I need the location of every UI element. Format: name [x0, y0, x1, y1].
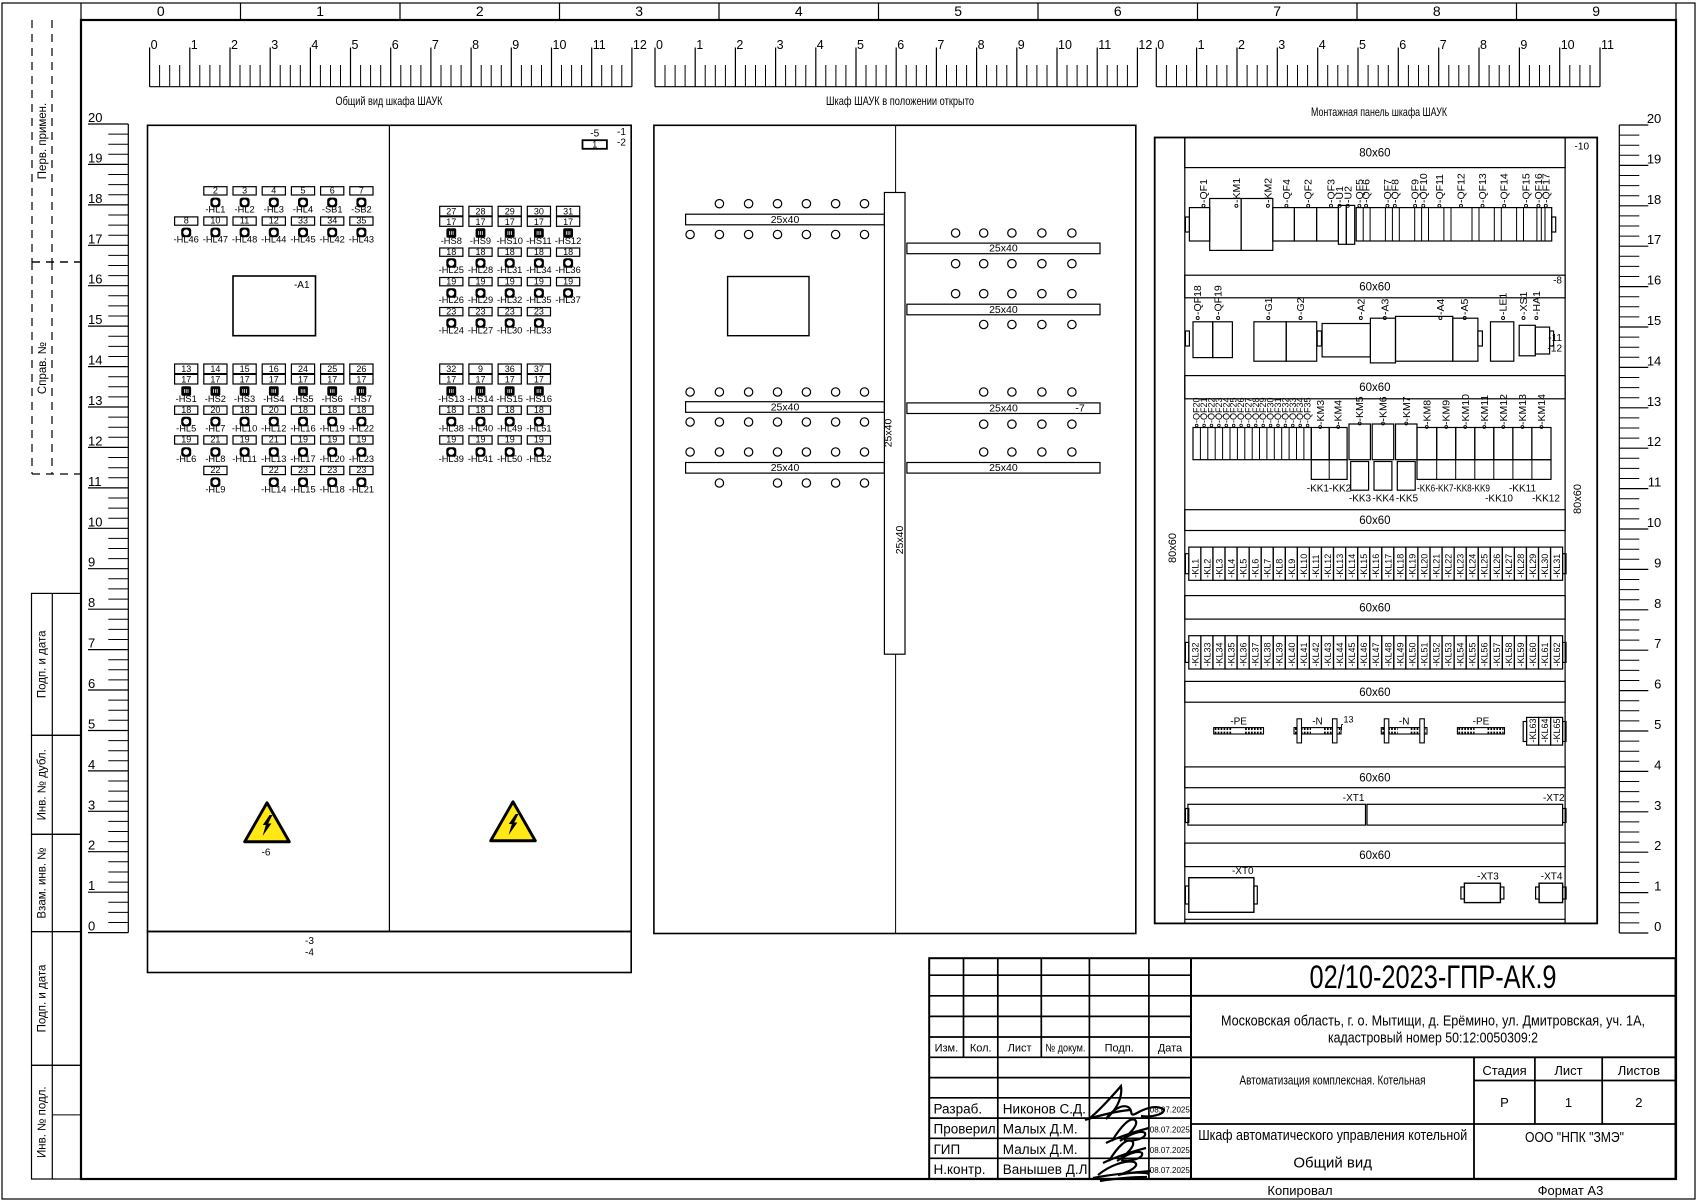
svg-text:-KL12: -KL12 — [1323, 554, 1333, 578]
svg-text:-HS13: -HS13 — [438, 394, 464, 404]
svg-text:-HL9: -HL9 — [205, 484, 225, 494]
svg-text:22: 22 — [210, 465, 220, 475]
svg-text:26: 26 — [356, 364, 366, 374]
svg-text:-QF18: -QF18 — [1192, 285, 1204, 315]
svg-text:11: 11 — [88, 474, 102, 489]
svg-text:17: 17 — [505, 217, 515, 227]
svg-text:17: 17 — [181, 375, 191, 385]
svg-text:2: 2 — [231, 38, 238, 52]
svg-text:-HS9: -HS9 — [470, 236, 491, 246]
svg-text:17: 17 — [298, 375, 308, 385]
svg-text:8: 8 — [978, 38, 985, 52]
svg-text:Взам. инв. №: Взам. инв. № — [37, 847, 49, 918]
svg-text:-KL2: -KL2 — [1202, 559, 1212, 578]
svg-text:11: 11 — [593, 38, 606, 52]
svg-text:-KM4: -KM4 — [1333, 400, 1345, 425]
svg-text:6: 6 — [1399, 38, 1406, 52]
svg-text:17: 17 — [356, 375, 366, 385]
svg-text:Никонов С.Д.: Никонов С.Д. — [1003, 1101, 1086, 1116]
svg-text:0: 0 — [88, 919, 95, 934]
svg-text:-HL45: -HL45 — [290, 234, 315, 244]
svg-text:-HL18: -HL18 — [320, 484, 345, 494]
svg-text:2: 2 — [1635, 1095, 1642, 1110]
svg-text:17: 17 — [534, 217, 544, 227]
svg-text:-KL55: -KL55 — [1468, 642, 1478, 666]
svg-text:-SB1: -SB1 — [322, 204, 343, 214]
svg-text:-KL47: -KL47 — [1371, 642, 1381, 666]
svg-text:18: 18 — [181, 405, 191, 415]
svg-text:11: 11 — [1648, 475, 1662, 490]
svg-text:15: 15 — [1647, 313, 1661, 328]
svg-text:-HL41: -HL41 — [468, 454, 493, 464]
svg-text:-HS16: -HS16 — [526, 394, 552, 404]
svg-text:-HL14: -HL14 — [261, 484, 286, 494]
svg-text:12: 12 — [633, 38, 647, 52]
svg-text:19: 19 — [534, 435, 544, 445]
svg-text:7: 7 — [88, 636, 95, 651]
svg-text:19: 19 — [534, 276, 544, 286]
svg-text:17: 17 — [475, 217, 485, 227]
svg-text:-KL43: -KL43 — [1323, 642, 1333, 666]
svg-text:8: 8 — [184, 216, 189, 226]
svg-text:28: 28 — [475, 206, 485, 216]
svg-text:34: 34 — [327, 216, 337, 226]
svg-text:-KL24: -KL24 — [1468, 554, 1478, 578]
svg-text:25x40: 25x40 — [771, 462, 800, 474]
svg-text:4: 4 — [1319, 38, 1326, 52]
svg-text:Московская область, г. о. Мыти: Московская область, г. о. Мытищи, д. Ерё… — [1221, 1013, 1645, 1030]
svg-text:4: 4 — [88, 757, 95, 772]
svg-text:Проверил: Проверил — [934, 1122, 996, 1137]
svg-text:-KL22: -KL22 — [1444, 554, 1454, 578]
svg-text:6: 6 — [1114, 3, 1122, 19]
svg-text:-KM2: -KM2 — [1262, 178, 1274, 203]
svg-text:10: 10 — [1058, 38, 1072, 52]
svg-text:Н.контр.: Н.контр. — [934, 1162, 986, 1177]
svg-text:-HL49: -HL49 — [497, 424, 522, 434]
svg-text:-HL15: -HL15 — [290, 484, 315, 494]
svg-text:-6: -6 — [262, 848, 271, 859]
svg-text:17: 17 — [88, 231, 102, 246]
svg-text:9: 9 — [1592, 3, 1600, 19]
svg-text:Перв. примен.: Перв. примен. — [37, 103, 49, 179]
svg-text:3: 3 — [1278, 38, 1285, 52]
svg-text:4: 4 — [271, 186, 276, 196]
svg-text:-XT1: -XT1 — [1343, 793, 1365, 804]
svg-text:20: 20 — [88, 110, 102, 125]
svg-text:-KL31: -KL31 — [1552, 554, 1562, 578]
svg-text:4: 4 — [1654, 757, 1661, 772]
svg-text:13: 13 — [181, 364, 191, 374]
svg-text:-KL35: -KL35 — [1227, 642, 1237, 666]
svg-text:1: 1 — [88, 878, 95, 893]
svg-text:-HL22: -HL22 — [349, 424, 374, 434]
svg-text:-HL3: -HL3 — [264, 204, 284, 214]
svg-text:80x60: 80x60 — [1572, 484, 1584, 514]
svg-text:80x60: 80x60 — [1359, 148, 1390, 160]
svg-text:-KL59: -KL59 — [1516, 642, 1526, 666]
svg-text:17: 17 — [563, 217, 573, 227]
svg-text:19: 19 — [181, 435, 191, 445]
svg-text:2: 2 — [736, 38, 743, 52]
svg-text:10: 10 — [553, 38, 567, 52]
svg-text:-QF2: -QF2 — [1303, 179, 1315, 203]
svg-text:8: 8 — [472, 38, 479, 52]
svg-text:-KM5: -KM5 — [1354, 396, 1366, 421]
svg-text:-KK10: -KK10 — [1485, 494, 1513, 505]
svg-text:17: 17 — [210, 375, 220, 385]
svg-text:-KL4: -KL4 — [1227, 559, 1237, 578]
svg-text:-KL36: -KL36 — [1239, 642, 1249, 666]
svg-text:-U2: -U2 — [1342, 186, 1354, 203]
svg-text:6: 6 — [897, 38, 904, 52]
svg-text:13: 13 — [88, 393, 102, 408]
svg-text:-KM10: -KM10 — [1460, 394, 1472, 425]
svg-text:Лист: Лист — [1008, 1043, 1032, 1055]
svg-text:-KL13: -KL13 — [1335, 554, 1345, 578]
svg-text:-HL5: -HL5 — [176, 424, 196, 434]
svg-text:-KM12: -KM12 — [1498, 394, 1510, 425]
svg-text:25x40: 25x40 — [771, 401, 800, 413]
svg-text:7: 7 — [432, 38, 439, 52]
svg-text:-HL11: -HL11 — [232, 454, 257, 464]
svg-text:17: 17 — [446, 375, 456, 385]
svg-text:3: 3 — [777, 38, 784, 52]
svg-text:5: 5 — [300, 186, 305, 196]
svg-text:-KL30: -KL30 — [1540, 554, 1550, 578]
svg-text:-QF1: -QF1 — [1198, 179, 1210, 203]
svg-text:-KL34: -KL34 — [1214, 642, 1224, 666]
svg-text:-HL33: -HL33 — [526, 325, 551, 335]
svg-text:-HL27: -HL27 — [468, 325, 493, 335]
svg-text:-KL8: -KL8 — [1275, 559, 1285, 578]
svg-text:-KK12: -KK12 — [1532, 494, 1560, 505]
svg-text:-HS10: -HS10 — [497, 236, 523, 246]
svg-text:Разраб.: Разраб. — [934, 1101, 983, 1116]
svg-text:60x60: 60x60 — [1359, 687, 1390, 699]
svg-text:-KM14: -KM14 — [1536, 394, 1548, 425]
svg-text:19: 19 — [298, 435, 308, 445]
svg-text:5: 5 — [1654, 717, 1661, 732]
svg-text:19: 19 — [505, 435, 515, 445]
svg-text:6: 6 — [1654, 677, 1661, 692]
svg-text:-QF11: -QF11 — [1434, 174, 1446, 203]
svg-text:-G2: -G2 — [1295, 297, 1307, 315]
svg-text:-HL21: -HL21 — [349, 484, 374, 494]
svg-text:-1: -1 — [617, 127, 626, 138]
svg-text:-QF12: -QF12 — [1456, 173, 1468, 203]
svg-text:7: 7 — [359, 186, 364, 196]
svg-text:35: 35 — [356, 216, 366, 226]
svg-text:-XS1: -XS1 — [1518, 291, 1530, 315]
svg-text:-XT3: -XT3 — [1477, 872, 1499, 883]
svg-text:08.07.2025: 08.07.2025 — [1150, 1126, 1191, 1135]
svg-text:-HS8: -HS8 — [441, 236, 462, 246]
svg-text:-HL23: -HL23 — [349, 454, 374, 464]
svg-text:32: 32 — [446, 364, 456, 374]
svg-text:18: 18 — [327, 405, 337, 415]
svg-text:15: 15 — [240, 364, 250, 374]
svg-text:7: 7 — [1273, 3, 1281, 19]
svg-text:20: 20 — [210, 405, 220, 415]
svg-text:-KL50: -KL50 — [1407, 642, 1417, 666]
svg-text:-HL51: -HL51 — [526, 424, 551, 434]
svg-text:1: 1 — [1654, 879, 1661, 894]
svg-text:19: 19 — [446, 435, 456, 445]
svg-text:6: 6 — [392, 38, 399, 52]
svg-text:-KL38: -KL38 — [1263, 642, 1273, 666]
svg-text:-HS4: -HS4 — [263, 394, 284, 404]
svg-text:23: 23 — [327, 465, 337, 475]
svg-text:25x40: 25x40 — [989, 403, 1018, 415]
svg-text:-HL25: -HL25 — [439, 265, 464, 275]
svg-text:-5: -5 — [590, 129, 599, 140]
svg-text:Лист: Лист — [1554, 1063, 1582, 1078]
svg-text:Р: Р — [1500, 1095, 1509, 1110]
svg-text:5: 5 — [1359, 38, 1366, 52]
svg-text:6: 6 — [88, 676, 95, 691]
svg-text:-QF8: -QF8 — [1389, 179, 1401, 203]
svg-text:5: 5 — [954, 3, 962, 19]
svg-text:№ докум.: № докум. — [1045, 1043, 1085, 1055]
svg-text:-KL23: -KL23 — [1456, 554, 1466, 578]
svg-text:18: 18 — [475, 405, 485, 415]
svg-text:-HS7: -HS7 — [351, 394, 372, 404]
svg-text:19: 19 — [88, 150, 102, 165]
svg-text:-A3: -A3 — [1379, 299, 1391, 316]
svg-text:25: 25 — [327, 364, 337, 374]
svg-text:-QF13: -QF13 — [1477, 173, 1489, 203]
svg-text:-KL6: -KL6 — [1251, 559, 1261, 578]
svg-text:Стадия: Стадия — [1482, 1063, 1526, 1078]
svg-text:-KL49: -KL49 — [1395, 642, 1405, 666]
svg-text:18: 18 — [505, 247, 515, 257]
svg-text:7: 7 — [1440, 38, 1447, 52]
svg-text:-HL6: -HL6 — [176, 454, 196, 464]
svg-text:14: 14 — [210, 364, 220, 374]
svg-text:19: 19 — [563, 276, 573, 286]
svg-text:-KL46: -KL46 — [1359, 642, 1369, 666]
svg-text:-KL61: -KL61 — [1540, 642, 1550, 666]
svg-text:17: 17 — [1647, 232, 1661, 247]
svg-text:-N: -N — [1399, 717, 1410, 728]
svg-text:21: 21 — [269, 435, 279, 445]
svg-text:-7: -7 — [1075, 403, 1084, 415]
svg-text:7: 7 — [1654, 636, 1661, 651]
svg-text:1: 1 — [696, 38, 703, 52]
svg-text:9: 9 — [1654, 555, 1661, 570]
svg-text:9: 9 — [512, 38, 519, 52]
svg-text:-KM11: -KM11 — [1479, 395, 1491, 425]
svg-text:22: 22 — [269, 465, 279, 475]
svg-text:18: 18 — [446, 405, 456, 415]
svg-text:4: 4 — [795, 3, 803, 19]
svg-text:21: 21 — [210, 435, 220, 445]
svg-text:3: 3 — [1654, 798, 1661, 813]
svg-text:5: 5 — [857, 38, 864, 52]
svg-text:-KL57: -KL57 — [1492, 642, 1502, 666]
svg-text:-HS11: -HS11 — [526, 236, 552, 246]
svg-text:-HL7: -HL7 — [205, 424, 225, 434]
svg-text:19: 19 — [327, 435, 337, 445]
svg-text:Общий вид шкафа ШАУК: Общий вид шкафа ШАУК — [336, 94, 443, 108]
svg-text:-HL50: -HL50 — [497, 454, 522, 464]
svg-text:1: 1 — [316, 3, 324, 19]
svg-text:23: 23 — [298, 465, 308, 475]
svg-text:-4: -4 — [305, 948, 314, 959]
svg-text:19: 19 — [1647, 151, 1661, 166]
svg-text:-HL10: -HL10 — [232, 424, 257, 434]
svg-text:-KK1-KK2: -KK1-KK2 — [1307, 484, 1352, 495]
svg-text:-A2: -A2 — [1355, 299, 1367, 316]
svg-text:Инв. № подл.: Инв. № подл. — [37, 1086, 49, 1158]
svg-text:10: 10 — [210, 216, 220, 226]
svg-text:11: 11 — [1601, 38, 1614, 52]
svg-text:-XT0: -XT0 — [1232, 866, 1254, 877]
svg-text:-QF35: -QF35 — [1303, 397, 1313, 423]
svg-text:-A1: -A1 — [294, 280, 310, 291]
svg-text:10: 10 — [88, 514, 102, 529]
svg-text:-QF6: -QF6 — [1361, 179, 1373, 203]
svg-text:-KM6: -KM6 — [1378, 396, 1390, 421]
svg-text:2: 2 — [476, 3, 484, 19]
svg-text:-HL24: -HL24 — [439, 325, 464, 335]
svg-text:-KL45: -KL45 — [1347, 642, 1357, 666]
svg-text:14: 14 — [88, 353, 102, 368]
svg-text:-KL5: -KL5 — [1239, 559, 1249, 578]
svg-text:9: 9 — [1520, 38, 1527, 52]
svg-text:-KL52: -KL52 — [1432, 642, 1442, 666]
svg-text:-QF17: -QF17 — [1540, 173, 1552, 203]
svg-text:-KM13: -KM13 — [1517, 394, 1529, 425]
svg-text:10: 10 — [1647, 515, 1661, 530]
svg-text:Формат А3: Формат А3 — [1538, 1183, 1604, 1198]
svg-text:23: 23 — [356, 465, 366, 475]
svg-text:-HS14: -HS14 — [467, 394, 493, 404]
svg-text:1: 1 — [191, 38, 198, 52]
svg-text:31: 31 — [563, 206, 573, 216]
svg-text:17: 17 — [446, 217, 456, 227]
svg-text:2: 2 — [1654, 838, 1661, 853]
svg-text:Подп. и дата: Подп. и дата — [37, 630, 49, 698]
svg-text:-KL15: -KL15 — [1359, 554, 1369, 578]
svg-text:18: 18 — [356, 405, 366, 415]
svg-text:20: 20 — [269, 405, 279, 415]
svg-text:Подп. и дата: Подп. и дата — [37, 964, 49, 1032]
svg-text:-KL44: -KL44 — [1335, 642, 1345, 666]
svg-text:23: 23 — [534, 306, 544, 316]
svg-text:-HL48: -HL48 — [232, 234, 257, 244]
svg-text:60x60: 60x60 — [1359, 515, 1390, 527]
svg-text:08.07.2025: 08.07.2025 — [1150, 1166, 1191, 1175]
svg-text:02/10-2023-ГПР-АК.9: 02/10-2023-ГПР-АК.9 — [1310, 959, 1557, 995]
svg-text:-HL1: -HL1 — [205, 204, 225, 214]
svg-text:18: 18 — [88, 191, 102, 206]
svg-text:-10: -10 — [1575, 142, 1590, 153]
svg-text:-HL30: -HL30 — [497, 325, 522, 335]
svg-text:-HL4: -HL4 — [293, 204, 313, 214]
svg-text:-11: -11 — [1548, 333, 1562, 344]
svg-text:-KL7: -KL7 — [1263, 559, 1273, 578]
svg-text:18: 18 — [240, 405, 250, 415]
svg-text:-KK4: -KK4 — [1372, 494, 1395, 505]
svg-text:Инв. № дубл.: Инв. № дубл. — [37, 749, 49, 820]
svg-text:60x60: 60x60 — [1359, 382, 1390, 394]
svg-text:-KL41: -KL41 — [1299, 642, 1309, 666]
svg-text:-HS5: -HS5 — [292, 394, 313, 404]
svg-text:-HA1: -HA1 — [1531, 291, 1543, 315]
svg-text:1: 1 — [1565, 1095, 1572, 1110]
svg-text:19: 19 — [240, 435, 250, 445]
svg-text:-KL64: -KL64 — [1540, 718, 1550, 742]
svg-text:Автоматизация комплексная. Кот: Автоматизация комплексная. Котельная — [1240, 1074, 1426, 1088]
svg-text:2: 2 — [213, 186, 218, 196]
svg-text:-HL31: -HL31 — [497, 265, 522, 275]
svg-text:3: 3 — [88, 797, 95, 812]
svg-text:12: 12 — [1138, 38, 1152, 52]
svg-text:3: 3 — [242, 186, 247, 196]
svg-text:Малых Д.М.: Малых Д.М. — [1003, 1122, 1078, 1137]
svg-text:60x60: 60x60 — [1359, 772, 1390, 784]
svg-text:-KL10: -KL10 — [1299, 554, 1309, 578]
svg-text:-HS2: -HS2 — [205, 394, 226, 404]
svg-text:-HL28: -HL28 — [468, 265, 493, 275]
svg-text:60x60: 60x60 — [1359, 602, 1390, 614]
svg-text:-KL56: -KL56 — [1480, 642, 1490, 666]
svg-text:7: 7 — [937, 38, 944, 52]
svg-text:18: 18 — [534, 247, 544, 257]
svg-text:-KL14: -KL14 — [1347, 554, 1357, 578]
svg-text:18: 18 — [1647, 192, 1661, 207]
svg-text:-HS15: -HS15 — [497, 394, 523, 404]
svg-text:-KL27: -KL27 — [1504, 554, 1514, 578]
svg-text:-KL16: -KL16 — [1371, 554, 1381, 578]
svg-text:8: 8 — [88, 595, 95, 610]
svg-text:11: 11 — [1098, 38, 1111, 52]
svg-text:-HL37: -HL37 — [555, 295, 580, 305]
svg-text:-2: -2 — [617, 138, 626, 149]
svg-text:-HL43: -HL43 — [349, 234, 374, 244]
svg-text:-KL62: -KL62 — [1552, 642, 1562, 666]
svg-text:-KL1: -KL1 — [1190, 559, 1200, 578]
svg-text:-KL53: -KL53 — [1444, 642, 1454, 666]
svg-text:-HL17: -HL17 — [290, 454, 315, 464]
svg-text:-KL21: -KL21 — [1432, 554, 1442, 578]
svg-text:8: 8 — [1480, 38, 1487, 52]
svg-text:10: 10 — [1561, 38, 1575, 52]
svg-text:-QF14: -QF14 — [1499, 173, 1511, 203]
svg-text:13: 13 — [1344, 715, 1354, 725]
svg-text:2: 2 — [1238, 38, 1245, 52]
svg-text:-KM8: -KM8 — [1421, 400, 1433, 425]
svg-text:60x60: 60x60 — [1359, 850, 1390, 862]
svg-text:-A5: -A5 — [1459, 299, 1471, 316]
svg-text:0: 0 — [1157, 38, 1164, 52]
svg-text:-HL16: -HL16 — [290, 424, 315, 434]
svg-text:17: 17 — [505, 375, 515, 385]
svg-text:Копировал: Копировал — [1267, 1183, 1332, 1198]
svg-text:16: 16 — [88, 272, 102, 287]
svg-text:23: 23 — [475, 306, 485, 316]
svg-text:-KL58: -KL58 — [1504, 642, 1514, 666]
svg-text:-HL19: -HL19 — [320, 424, 345, 434]
svg-text:12: 12 — [269, 216, 279, 226]
svg-text:29: 29 — [505, 206, 515, 216]
svg-text:-N: -N — [1312, 717, 1323, 728]
svg-text:08.07.2025: 08.07.2025 — [1150, 1146, 1191, 1155]
svg-text:16: 16 — [269, 364, 279, 374]
svg-text:-KM9: -KM9 — [1441, 400, 1453, 425]
